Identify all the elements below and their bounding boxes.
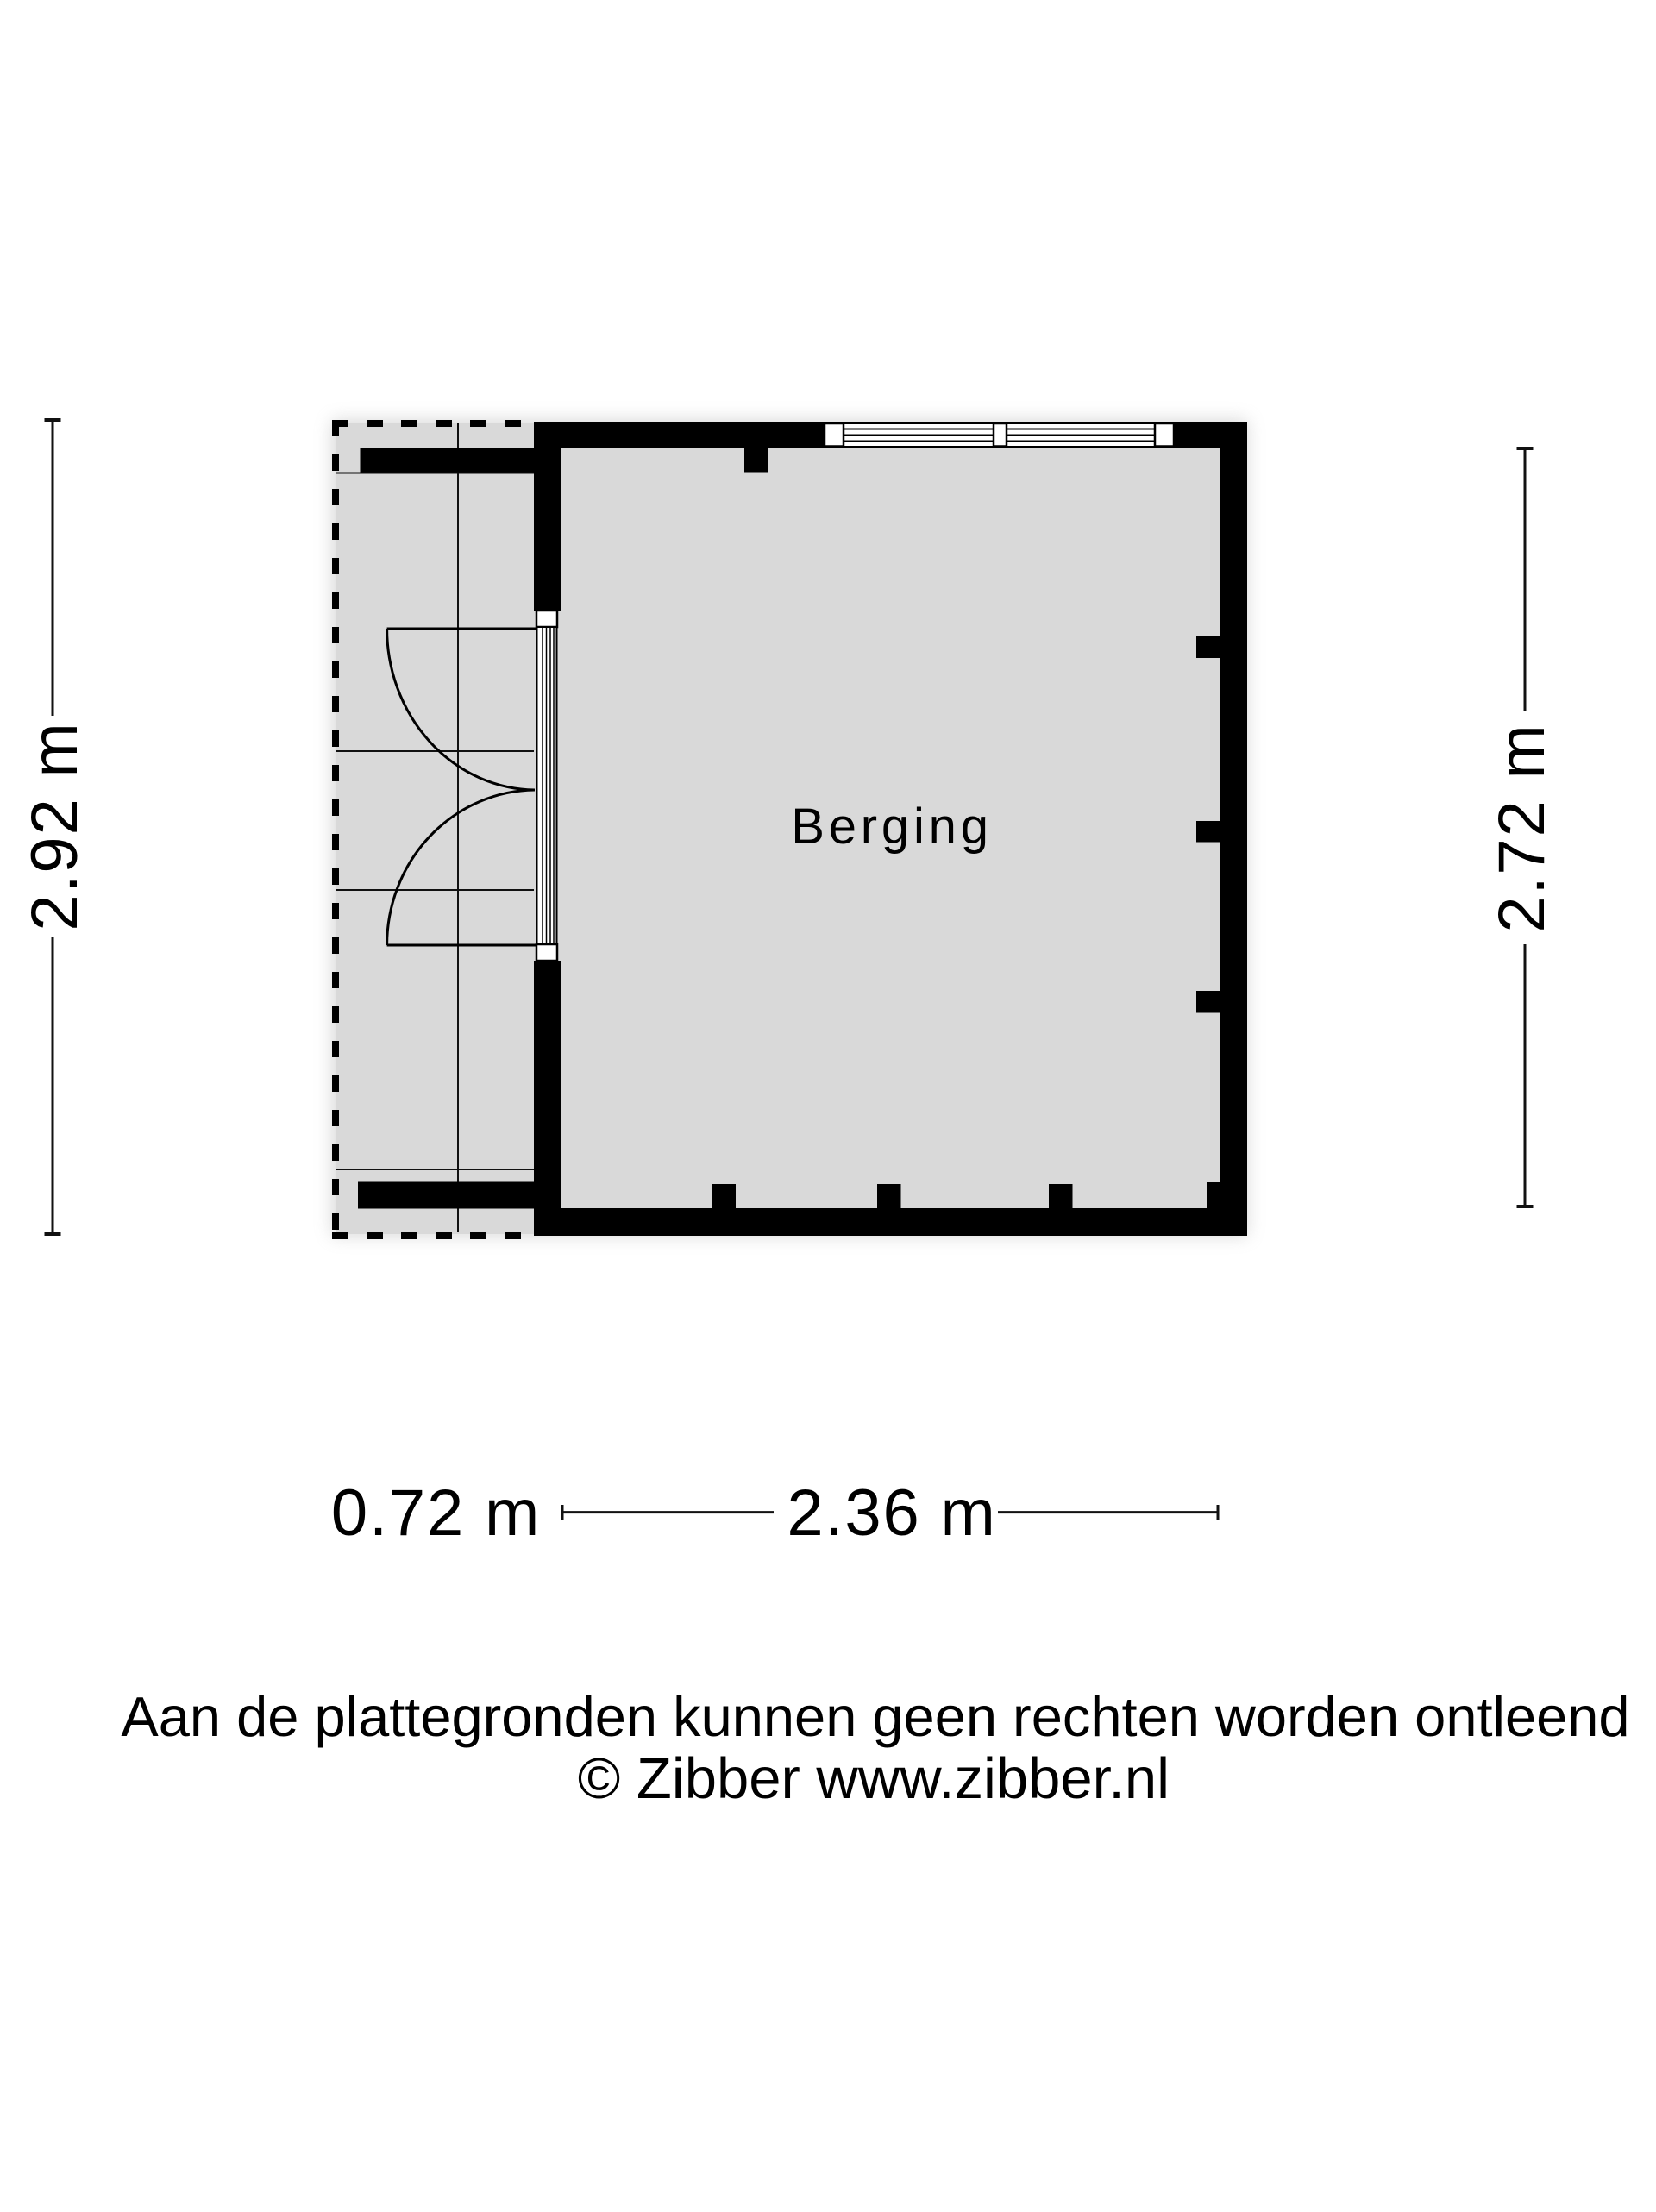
svg-text:0.72 m: 0.72 m: [331, 1476, 541, 1550]
svg-text:2.36 m: 2.36 m: [787, 1476, 996, 1550]
svg-text:Berging: Berging: [791, 799, 993, 855]
svg-text:2.92 m: 2.92 m: [18, 721, 91, 931]
svg-text:Aan de plattegronden kunnen ge: Aan de plattegronden kunnen geen rechten…: [121, 1685, 1629, 1748]
svg-text:2.72 m: 2.72 m: [1485, 723, 1559, 932]
svg-text:© Zibber www.zibber.nl: © Zibber www.zibber.nl: [578, 1746, 1170, 1811]
